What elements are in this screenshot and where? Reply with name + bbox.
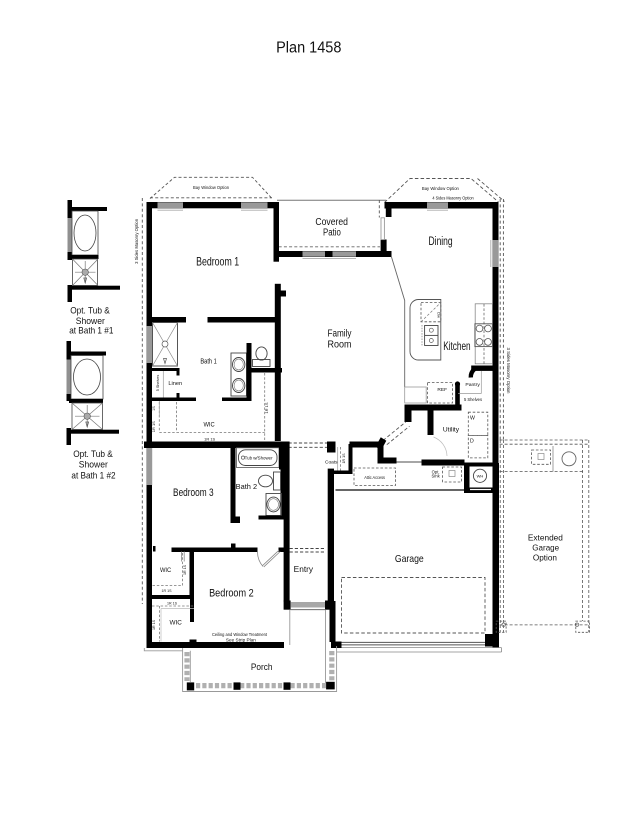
svg-text:at Bath 1 #1: at Bath 1 #1 xyxy=(69,326,113,336)
svg-text:D: D xyxy=(470,439,474,445)
svg-text:5 Shelves: 5 Shelves xyxy=(464,397,482,402)
svg-text:Garage: Garage xyxy=(395,554,424,565)
svg-text:Room: Room xyxy=(328,339,352,350)
svg-text:Sink: Sink xyxy=(432,474,441,479)
svg-text:Linen: Linen xyxy=(168,381,182,387)
svg-text:Extended: Extended xyxy=(528,533,563,543)
svg-text:Bedroom 1: Bedroom 1 xyxy=(196,255,239,269)
svg-text:Tub w/Shower: Tub w/Shower xyxy=(245,456,273,461)
svg-text:See Strip Plan: See Strip Plan xyxy=(226,637,256,642)
svg-text:1R 1S: 1R 1S xyxy=(162,589,172,593)
svg-text:1R 1S: 1R 1S xyxy=(167,602,177,606)
svg-text:Covered: Covered xyxy=(315,217,348,228)
svg-text:Patio: Patio xyxy=(323,228,341,239)
svg-text:Pantry: Pantry xyxy=(465,382,480,387)
svg-text:Shower: Shower xyxy=(79,460,108,470)
svg-text:WIC: WIC xyxy=(170,619,183,626)
svg-text:Opt. Tub &: Opt. Tub & xyxy=(73,449,113,459)
svg-text:Option: Option xyxy=(533,552,557,562)
svg-text:Bedroom 3: Bedroom 3 xyxy=(173,487,214,499)
svg-text:WIC: WIC xyxy=(160,567,172,574)
svg-text:5 Shelves: 5 Shelves xyxy=(156,375,160,392)
svg-text:Shower: Shower xyxy=(76,316,105,326)
svg-text:1R 1S: 1R 1S xyxy=(152,620,156,630)
svg-text:Entry: Entry xyxy=(294,564,314,574)
svg-text:WIC: WIC xyxy=(203,422,215,429)
svg-text:Plan 1458: Plan 1458 xyxy=(276,40,341,57)
svg-text:Bath 1: Bath 1 xyxy=(200,356,217,365)
svg-text:Bay Window Option: Bay Window Option xyxy=(422,186,459,191)
svg-text:3 Sides Masonry Option: 3 Sides Masonry Option xyxy=(506,348,511,394)
svg-text:Kitchen: Kitchen xyxy=(443,339,470,353)
svg-text:Bedroom 2: Bedroom 2 xyxy=(209,588,254,600)
svg-text:W: W xyxy=(470,416,475,422)
svg-text:1R 1S: 1R 1S xyxy=(342,453,346,464)
svg-text:3 Sides Masonry Option: 3 Sides Masonry Option xyxy=(134,218,139,263)
svg-text:Porch: Porch xyxy=(251,662,273,673)
svg-text:Dw: Dw xyxy=(437,312,442,318)
svg-text:1R 1S: 1R 1S xyxy=(183,565,187,575)
svg-text:WH: WH xyxy=(477,474,484,479)
svg-text:1R 1S: 1R 1S xyxy=(152,421,156,432)
svg-text:Bath 2: Bath 2 xyxy=(236,482,257,491)
svg-text:Bay Window Option: Bay Window Option xyxy=(193,185,229,190)
svg-text:1R 1S: 1R 1S xyxy=(204,438,215,442)
svg-text:Ceiling and Window Treatment: Ceiling and Window Treatment xyxy=(212,632,268,637)
svg-text:Coats: Coats xyxy=(325,460,338,465)
svg-text:Opt. Tub &: Opt. Tub & xyxy=(70,306,110,316)
svg-text:Family: Family xyxy=(328,328,352,339)
svg-text:at Bath 1 #2: at Bath 1 #2 xyxy=(71,470,115,480)
svg-text:4 Sides Masonry Option: 4 Sides Masonry Option xyxy=(432,196,474,201)
svg-text:Dining: Dining xyxy=(429,234,453,248)
svg-text:Utility: Utility xyxy=(443,427,460,434)
svg-text:Garage: Garage xyxy=(532,543,559,553)
svg-text:Attic Access: Attic Access xyxy=(364,475,386,480)
svg-text:1S: 1S xyxy=(152,406,156,411)
svg-text:1R 1S: 1R 1S xyxy=(265,402,269,413)
svg-text:REF: REF xyxy=(437,387,447,392)
